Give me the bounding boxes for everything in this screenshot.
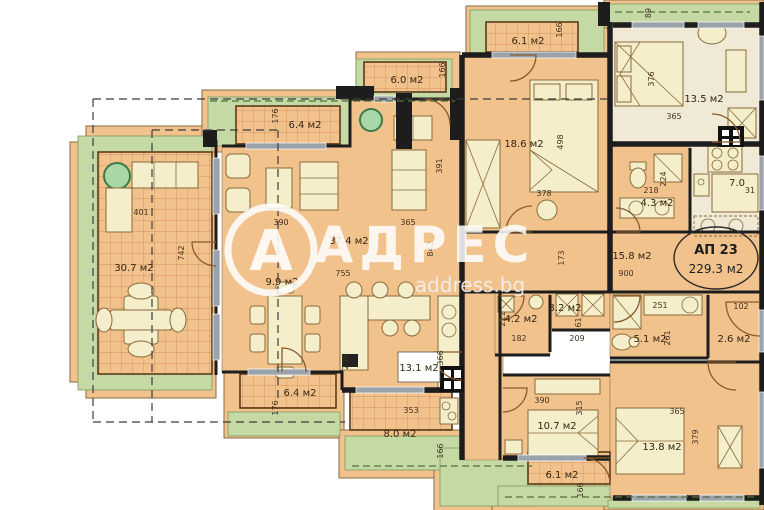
dim: 166 <box>555 22 564 37</box>
room-label-balcony-bottom-left: 6.4 м2 <box>284 388 317 399</box>
dim: 315 <box>575 400 584 415</box>
room-label-bedroom1: 18.6 м2 <box>504 139 543 150</box>
dim: 173 <box>557 250 566 265</box>
sink <box>529 295 543 309</box>
dim: 236 <box>341 354 350 369</box>
sink <box>694 174 709 196</box>
dim: 176 <box>271 108 280 123</box>
room-label-kitchen-niche: 7.0 <box>729 178 745 189</box>
dim: 224 <box>659 171 668 186</box>
dim: 365 <box>666 112 681 121</box>
shower <box>613 295 641 329</box>
dim: 218 <box>643 186 658 195</box>
dim: 391 <box>435 158 444 173</box>
room-label-wc: 4.2 м2 <box>505 314 538 325</box>
room-label-bedroom3: 10.7 м2 <box>537 421 576 432</box>
room-label-terrace: 30.7 м2 <box>114 263 153 274</box>
room-label-bathroom1: 4.3 м2 <box>641 198 674 209</box>
room-label-corridor: 2.6 м2 <box>718 334 751 345</box>
room-label-bedroom4: 13.8 м2 <box>642 442 681 453</box>
sofa <box>300 162 338 210</box>
wardrobe <box>718 426 742 468</box>
adres-logo-letter: А <box>249 219 293 284</box>
watermark-brand: АДРЕС <box>315 216 536 274</box>
floor-plan: 401 742 176 390 365 755 236 842 391 166 … <box>0 0 764 510</box>
armchair <box>226 188 250 212</box>
stove-shaft <box>440 366 464 392</box>
room-label-balcony-top: 6.0 м2 <box>391 75 424 86</box>
floor-plan-canvas: 401 742 176 390 365 755 236 842 391 166 … <box>0 0 764 510</box>
dim: 166 <box>576 482 585 497</box>
room-label-bedroom2: 13.5 м2 <box>684 94 723 105</box>
room-label-balcony-top-right: 6.1 м2 <box>512 36 545 47</box>
wardrobe <box>535 379 600 394</box>
cabinet <box>582 294 604 316</box>
sofa <box>392 150 426 210</box>
dim: 102 <box>733 302 748 311</box>
dim: 166 <box>436 443 445 458</box>
badge-area: 229.3 м2 <box>689 262 744 276</box>
room-label-bathroom2: 5.1 м2 <box>634 334 667 345</box>
coffee-table <box>266 168 292 208</box>
dim: 209 <box>569 334 584 343</box>
dim: 89 <box>644 8 653 18</box>
dim: 251 <box>652 301 667 310</box>
plant-table <box>360 109 382 131</box>
room-label-balcony-top-left: 6.4 м2 <box>289 120 322 131</box>
dim: 378 <box>536 189 551 198</box>
dim: 900 <box>618 269 633 278</box>
dim: 401 <box>133 208 148 217</box>
dim: 742 <box>177 245 186 260</box>
room-label-closet: 3.2 м2 <box>549 303 582 314</box>
dim: 390 <box>534 396 549 405</box>
dim: 31 <box>745 186 755 195</box>
bed <box>616 408 684 474</box>
watermark-site: address.bg <box>415 273 525 297</box>
dim: 365 <box>669 407 684 416</box>
bed <box>528 410 598 456</box>
dim: 376 <box>647 71 656 86</box>
dim: 498 <box>556 134 565 149</box>
wardrobe <box>466 140 500 228</box>
badge-unit: АП 23 <box>694 243 738 258</box>
round-table <box>104 163 130 189</box>
stove <box>708 146 742 172</box>
room-label-kitchen: 13.1 м2 <box>399 363 438 374</box>
dim: 182 <box>511 334 526 343</box>
dim: 166 <box>438 62 447 77</box>
nightstand <box>505 440 522 454</box>
armchair <box>226 154 250 178</box>
balcony-bottom <box>350 392 452 430</box>
room-label-balcony-bottom: 8.0 м2 <box>384 429 417 440</box>
toilet <box>630 162 646 188</box>
desk <box>726 50 746 92</box>
room-label-balcony-bottom-right: 6.1 м2 <box>546 470 579 481</box>
dim: 176 <box>271 400 280 415</box>
side-table <box>537 200 557 220</box>
room-label-hallway: 15.8 м2 <box>612 251 651 262</box>
dim: 161 <box>574 317 583 332</box>
dim: 379 <box>691 429 700 444</box>
dim: 353 <box>403 406 418 415</box>
